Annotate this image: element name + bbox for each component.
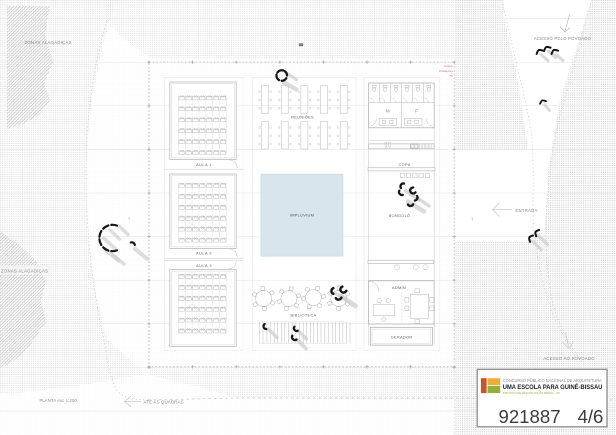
svg-text:wc: wc [450,73,454,77]
svg-text:módulo: módulo [444,64,454,68]
svg-text:ACESSO PELO POVOADO: ACESSO PELO POVOADO [534,36,592,41]
svg-text:UMA ESCOLA PARA GUINÉ-BISSAU: UMA ESCOLA PARA GUINÉ-BISSAU [503,383,603,391]
svg-text:COPA: COPA [399,162,411,167]
svg-text:PLANTA esc 1:200: PLANTA esc 1:200 [40,398,78,403]
svg-text:BIBLIOTECA: BIBLIOTECA [291,312,317,317]
svg-text:F: F [415,108,418,113]
svg-text:AULA 1: AULA 1 [196,162,212,167]
svg-text:ENTRADA: ENTRADA [515,208,537,213]
svg-text:instalações: instalações [439,69,454,73]
svg-text:M: M [386,108,390,113]
svg-text:REUNIÕES: REUNIÕES [291,115,314,120]
svg-text:v: v [129,217,131,221]
svg-text:CONCURSO PÚBLICO NACIONAL DE A: CONCURSO PÚBLICO NACIONAL DE ARQUITETURA [503,378,602,383]
svg-text:ACESSO AO POVOADO: ACESSO AO POVOADO [543,356,595,361]
svg-text:y: y [472,217,474,221]
svg-text:ADMIN: ADMIN [392,285,406,290]
svg-text:BONGOLÔ: BONGOLÔ [389,213,411,218]
svg-text:INSTITUTO DE ARQUITETOS DO BRA: INSTITUTO DE ARQUITETOS DO BRASIL – SP [503,391,560,395]
svg-text:AULA 3: AULA 3 [196,263,212,268]
svg-text:4/6: 4/6 [578,406,604,427]
svg-text:AULA 2: AULA 2 [196,251,212,256]
svg-text:ZONAS ALAGADIÇAS: ZONAS ALAGADIÇAS [25,40,72,45]
svg-text:ATÉ ÀS QUADRAS: ATÉ ÀS QUADRAS [144,400,184,405]
svg-text:IMPLUVIUM: IMPLUVIUM [290,213,314,218]
svg-text:921887: 921887 [499,406,561,427]
svg-text:ZONAS ALAGADIÇAS: ZONAS ALAGADIÇAS [1,269,48,274]
svg-text:GERADOR: GERADOR [391,334,413,339]
